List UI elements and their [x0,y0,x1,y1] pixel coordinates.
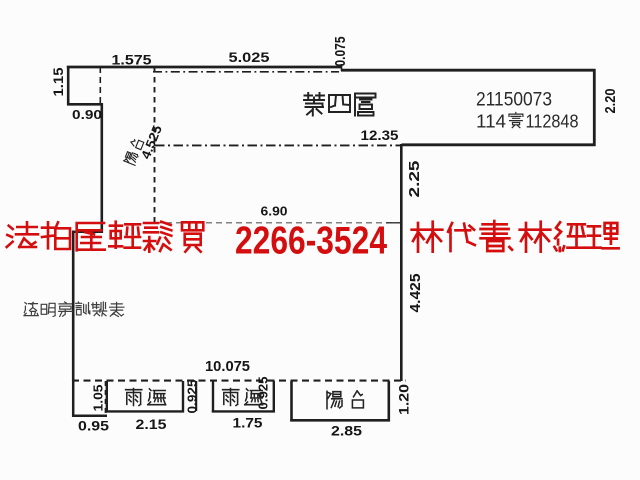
svg-text:2.20: 2.20 [603,89,619,114]
svg-text:4.425: 4.425 [408,274,424,313]
svg-text:6.90: 6.90 [261,204,288,219]
svg-text:21150073: 21150073 [476,89,552,111]
svg-text:1.575: 1.575 [112,53,153,68]
svg-text:1.75: 1.75 [233,416,264,431]
svg-text:2.85: 2.85 [331,424,363,439]
svg-text:112848: 112848 [526,111,579,132]
svg-text:0.95: 0.95 [78,419,110,434]
svg-text:2.15: 2.15 [136,417,168,432]
svg-text:12.35: 12.35 [361,128,400,143]
svg-text:114: 114 [476,111,506,132]
svg-text:1.20: 1.20 [397,384,412,415]
svg-text:2.25: 2.25 [407,161,423,198]
svg-text:0.90: 0.90 [72,107,102,122]
svg-text:1.05: 1.05 [91,385,106,412]
svg-text:10.075: 10.075 [205,359,250,375]
svg-text:0.925: 0.925 [186,379,200,413]
svg-text:1.15: 1.15 [50,67,66,96]
svg-text:5.025: 5.025 [229,50,271,65]
svg-text:0.075: 0.075 [332,37,349,67]
svg-text:2266-3524: 2266-3524 [235,220,387,263]
